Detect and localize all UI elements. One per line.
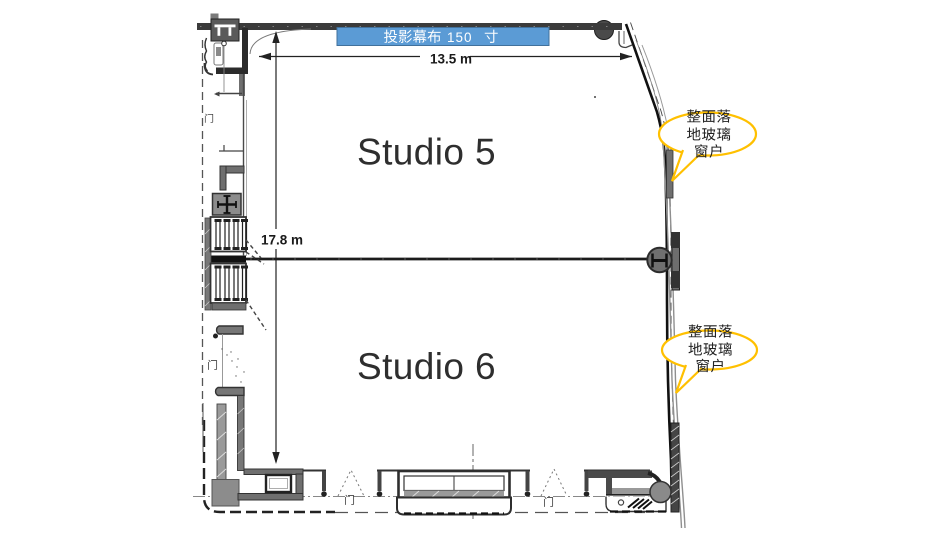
svg-text:17.8 m: 17.8 m: [261, 233, 303, 248]
svg-text:Studio 6: Studio 6: [357, 346, 496, 387]
svg-text:Studio 5: Studio 5: [357, 132, 496, 173]
svg-text:150: 150: [447, 30, 473, 45]
svg-text:13.5 m: 13.5 m: [430, 52, 472, 67]
